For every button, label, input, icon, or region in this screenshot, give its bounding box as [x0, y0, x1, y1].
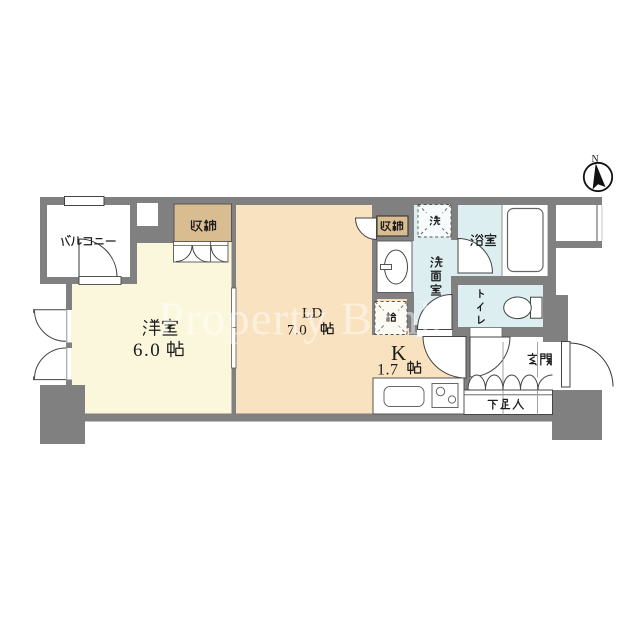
- svg-text:Property Bank: Property Bank: [158, 293, 444, 345]
- svg-text:6.0: 6.0: [133, 340, 161, 361]
- svg-text:1.7: 1.7: [377, 362, 399, 379]
- svg-text:N: N: [592, 154, 599, 165]
